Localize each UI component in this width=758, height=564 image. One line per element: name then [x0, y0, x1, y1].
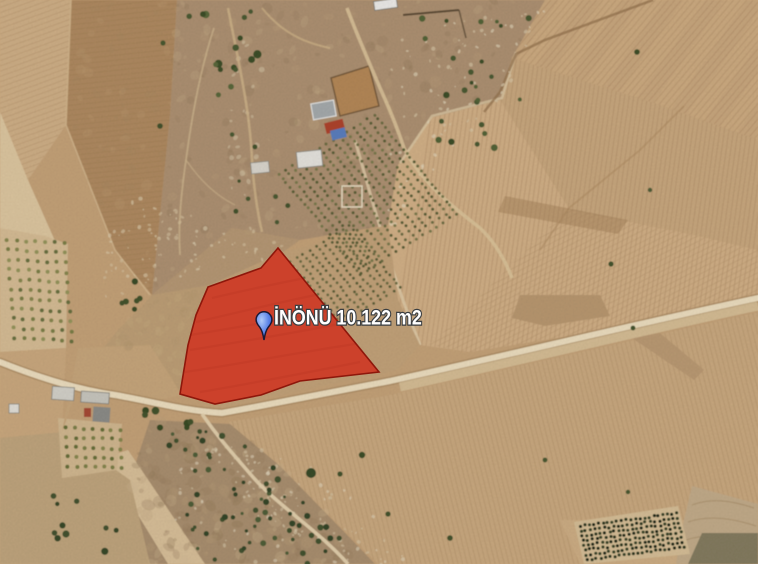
svg-text:İNÖNÜ 10.122 m2: İNÖNÜ 10.122 m2 [274, 305, 422, 330]
